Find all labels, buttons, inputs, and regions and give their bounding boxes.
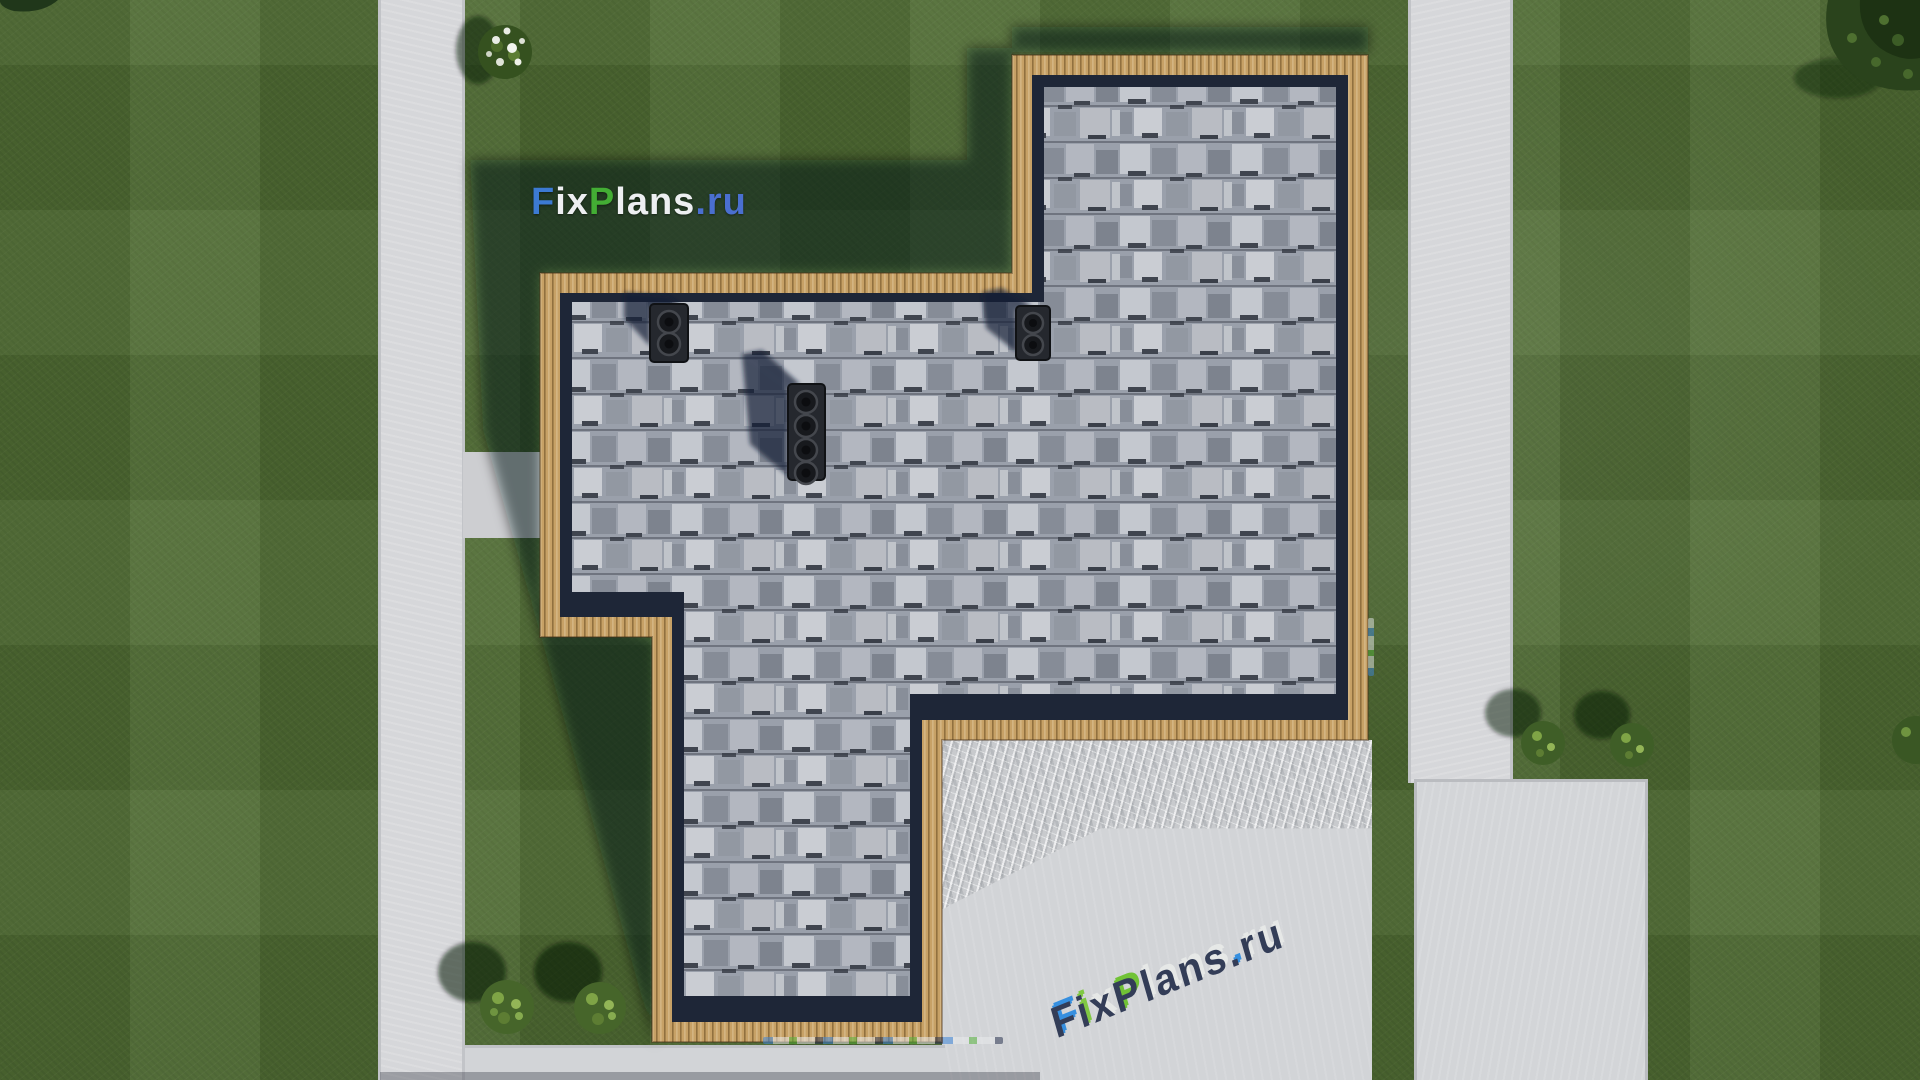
house-roof-scene <box>0 0 1920 1080</box>
watermark-segment: F <box>531 181 555 223</box>
vent-2-flue-b <box>1016 306 1050 360</box>
watermark-segment: P <box>589 181 615 223</box>
flowering-shrub <box>478 25 532 79</box>
vent-2-flue-a <box>650 304 688 362</box>
shrub-right-b <box>1610 723 1654 767</box>
watermark-segment: lans <box>615 181 695 223</box>
shrub-right-edge <box>1892 716 1920 764</box>
watermark-segment: .ru <box>695 181 747 223</box>
watermark-segment: ix <box>555 181 589 223</box>
shrub-bottom-left-a <box>480 980 534 1034</box>
aerial-render-canvas: FixPlans.ru FixPlans.ru <box>0 0 1920 1080</box>
watermark-fixplans-top: FixPlans.ru <box>531 181 747 224</box>
vent-4-flue <box>788 384 825 484</box>
shrub-right-a <box>1521 721 1565 765</box>
watermark-fragment-vertical <box>1368 618 1374 676</box>
tree-clump-top-left <box>0 0 58 12</box>
watermark-fragment-horizontal <box>763 1037 1003 1044</box>
shrub-bottom-left-b <box>574 982 626 1034</box>
